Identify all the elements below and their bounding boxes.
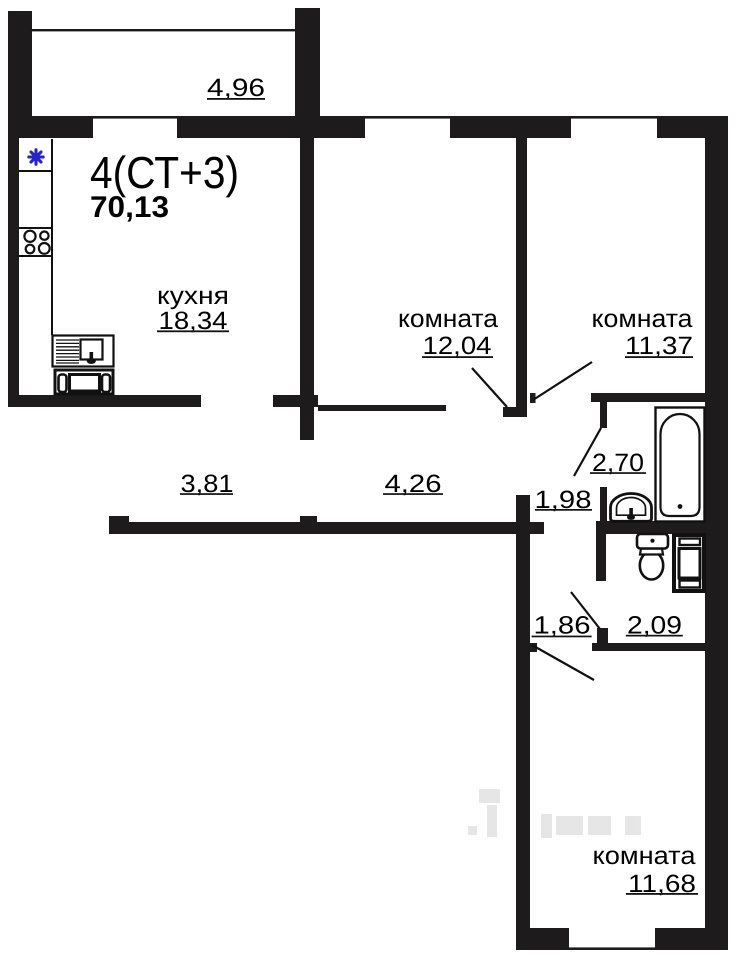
svg-text:11,37: 11,37 (625, 332, 693, 360)
svg-text:70,13: 70,13 (90, 191, 169, 224)
svg-text:4,96: 4,96 (207, 74, 265, 102)
svg-text:комната: комната (398, 305, 498, 333)
svg-text:1,86: 1,86 (534, 612, 591, 640)
svg-text:комната: комната (593, 842, 696, 870)
svg-text:кухня: кухня (157, 282, 229, 310)
svg-text:12,04: 12,04 (423, 332, 492, 360)
svg-text:комната: комната (592, 305, 693, 333)
